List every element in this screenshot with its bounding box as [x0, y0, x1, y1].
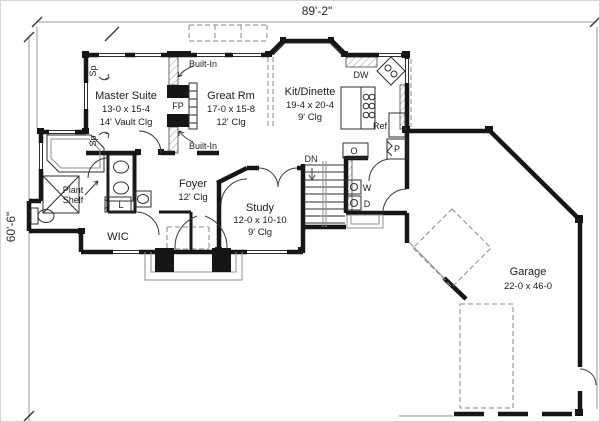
wic-label: WIC: [107, 231, 128, 243]
study-name: Study: [246, 202, 275, 214]
master-name: Master Suite: [95, 90, 157, 102]
master-size: 13-0 x 15-4: [102, 104, 150, 115]
master-ceiling: 14' Vault Clg: [100, 117, 153, 128]
great-name: Great Rm: [207, 90, 255, 102]
plant-shelf-line1: Plant: [63, 185, 84, 195]
car-space-rect: [460, 304, 513, 408]
linen-label: L: [118, 200, 123, 210]
garage-markings: [399, 209, 513, 416]
plant-shelf-arrow: [85, 181, 98, 195]
master-door-arc: [139, 131, 161, 153]
overall-width-dimension: 89'-2": [302, 4, 333, 18]
wic-door-arc: [136, 212, 159, 235]
garage-rear-door-arc: [580, 369, 596, 385]
down-arrow: [309, 168, 315, 180]
bay-window-inner-line: [273, 43, 342, 55]
study-double-door-arcs: [259, 168, 297, 187]
great-size: 17-0 x 15-8: [207, 104, 255, 115]
garage-size: 22-0 x 46-0: [504, 281, 552, 292]
fireplace-group: FP: [167, 83, 197, 129]
garage-entry-door-arc: [383, 189, 407, 213]
pantry-label: P: [394, 144, 400, 154]
foyer-ceiling: 12' Clg: [178, 192, 207, 203]
speaker-top-label: Sp: [88, 65, 98, 76]
dryer-label: D: [364, 199, 371, 209]
foyer-label: Foyer 12' Clg: [178, 178, 207, 203]
foyer-name: Foyer: [179, 178, 207, 190]
overall-height-dimension: 60'-6": [4, 212, 18, 243]
garage-label: Garage 22-0 x 46-0: [504, 266, 552, 292]
kitchen-ceiling: 9' Clg: [298, 112, 322, 123]
dishwasher-label: DW: [354, 70, 369, 80]
floor-plan-canvas: 89'-2" 60'-6": [0, 0, 600, 422]
hall-bath-sink: [135, 191, 151, 207]
speaker-top-arrow: [99, 74, 109, 80]
study-size: 12-0 x 10-10: [233, 215, 286, 226]
refrigerator-label: Ref: [373, 121, 388, 131]
built-in-top-label: Built-In: [189, 59, 217, 69]
corner-sink: [377, 57, 405, 85]
floor-plan-drawing: 89'-2" 60'-6": [1, 1, 600, 422]
plant-shelf-line2: Shelf: [63, 195, 84, 205]
vanity: [109, 155, 133, 201]
built-in-bottom-label: Built-In: [189, 141, 217, 151]
porch-pillar-right: [212, 248, 231, 272]
speaker-bottom-label: Sp: [88, 135, 98, 146]
toilet: [31, 208, 54, 224]
master-suite-label: Master Suite 13-0 x 15-4 14' Vault Clg: [95, 90, 157, 128]
garage-name: Garage: [510, 266, 547, 278]
stairs-down-label: DN: [305, 154, 318, 164]
foyer-study-door-arc: [221, 179, 247, 205]
kitchen-island: [341, 87, 375, 129]
service-stoop: [347, 215, 383, 228]
speaker-bottom-arrow: [99, 132, 109, 138]
washer-label: W: [363, 183, 372, 193]
hall-kitchen-door-arc: [369, 159, 391, 181]
oven-label: O: [350, 146, 357, 156]
car-space-diamond: [413, 209, 491, 287]
great-room-label: Great Rm 17-0 x 15-8 12' Clg: [207, 90, 255, 128]
pantry-bifold-door: [387, 141, 392, 156]
study-label: Study 12-0 x 10-10 9' Clg: [233, 202, 286, 238]
porch-pillar-left: [155, 248, 174, 272]
kitchen-size: 19-4 x 20-4: [286, 100, 334, 111]
great-ceiling: 12' Clg: [216, 117, 245, 128]
kitchen-label: Kit/Dinette 19-4 x 20-4 9' Clg: [285, 86, 336, 123]
kitchen-name: Kit/Dinette: [285, 86, 336, 98]
staircase: [304, 161, 345, 227]
plant-shelf-label: Plant Shelf: [63, 185, 84, 205]
fireplace-label: FP: [172, 101, 184, 111]
study-ceiling: 9' Clg: [248, 227, 272, 238]
